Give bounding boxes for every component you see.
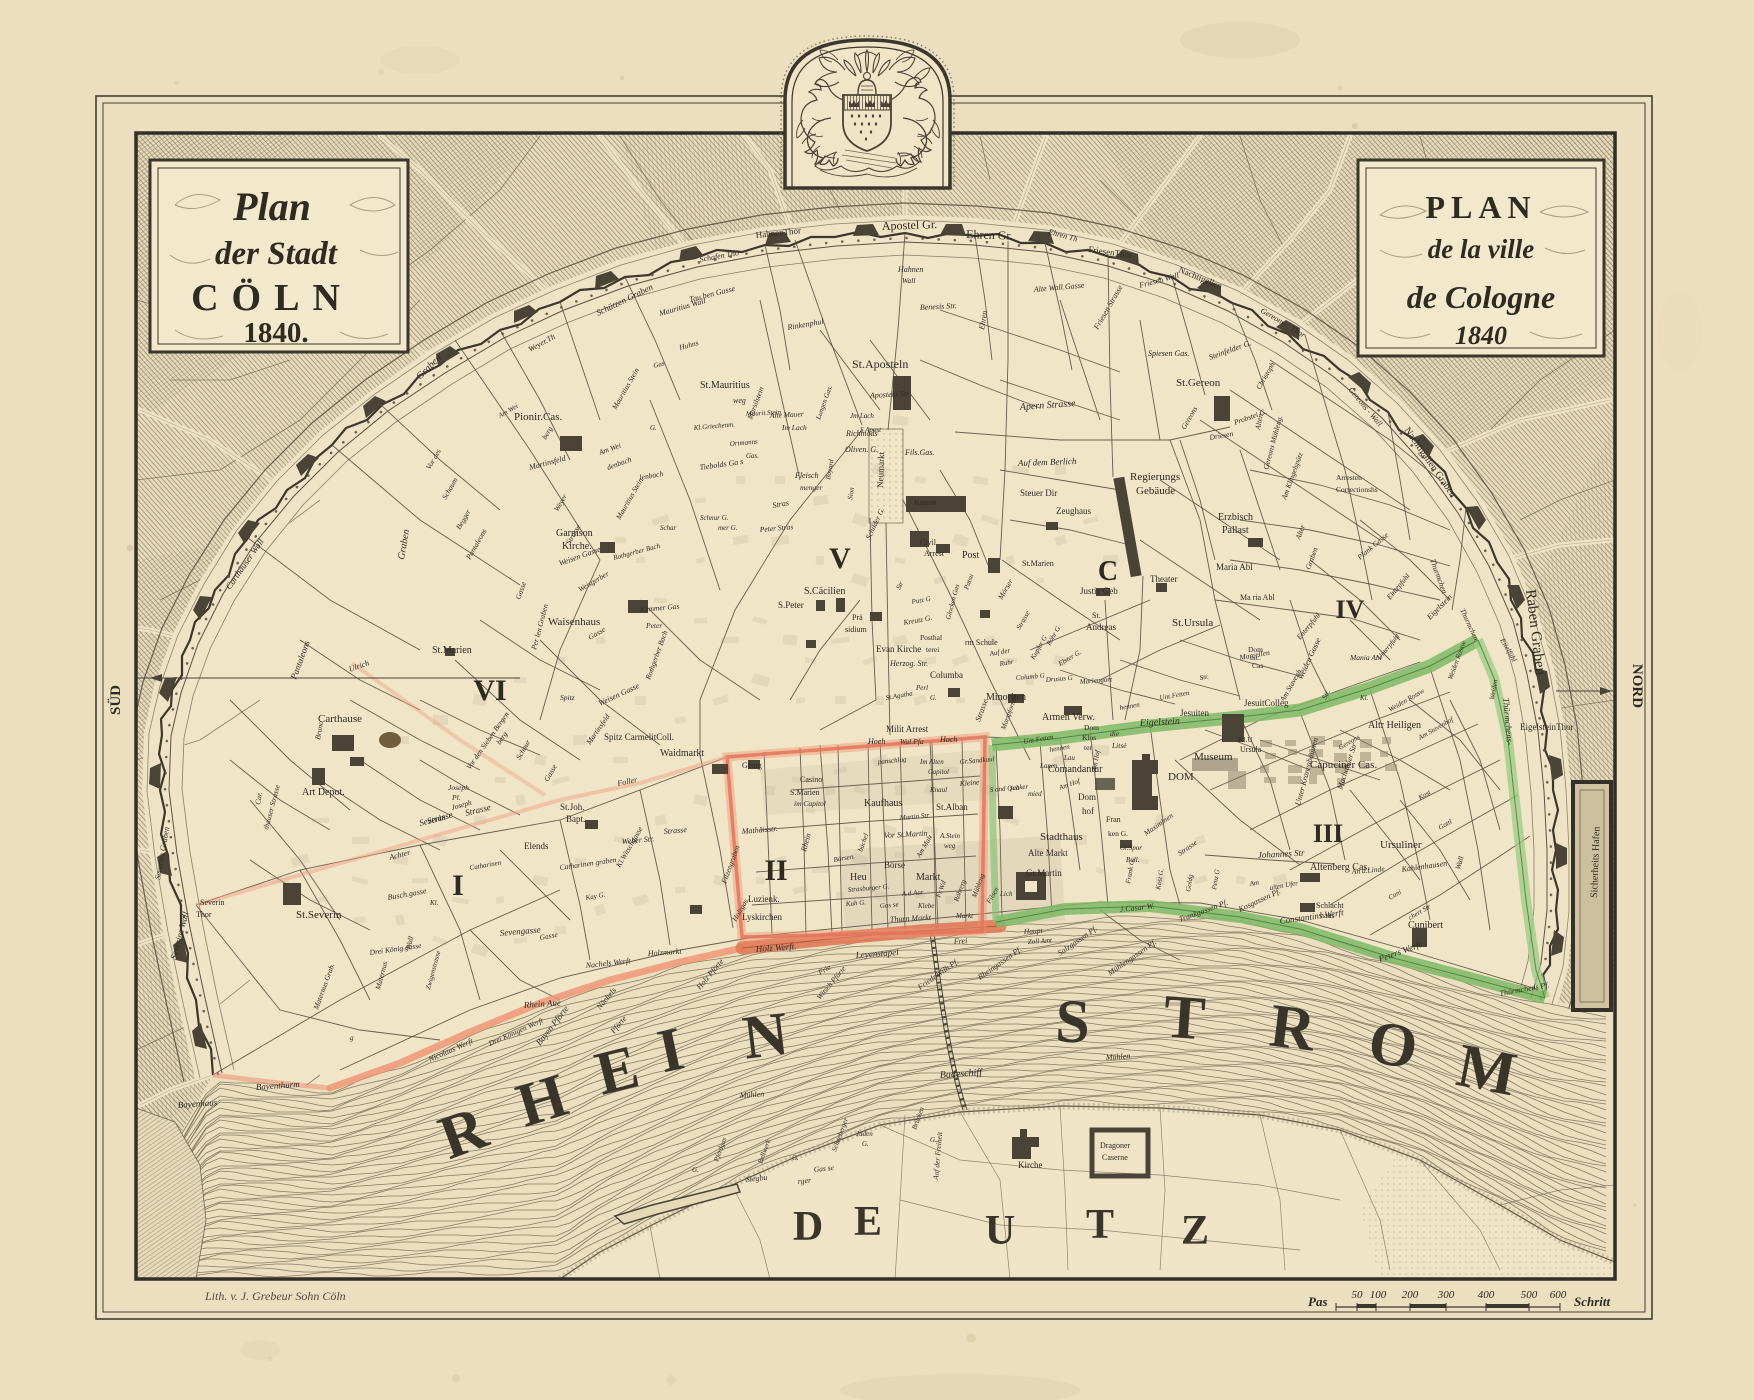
- svg-text:rger: rger: [797, 1176, 812, 1186]
- svg-text:Benesis Str.: Benesis Str.: [920, 301, 957, 312]
- svg-text:de la ville: de la ville: [1428, 234, 1534, 264]
- svg-text:Markt: Markt: [916, 872, 941, 883]
- svg-text:im Capitol: im Capitol: [794, 799, 826, 808]
- svg-text:II: II: [764, 854, 787, 887]
- svg-text:menger: menger: [800, 483, 823, 492]
- svg-text:Knaul: Knaul: [929, 786, 947, 794]
- svg-text:III: III: [1313, 819, 1343, 848]
- svg-text:Zeughaus: Zeughaus: [1056, 506, 1091, 516]
- svg-text:Stadthaus: Stadthaus: [1040, 831, 1083, 843]
- svg-text:U: U: [985, 1208, 1015, 1254]
- svg-text:DOM: DOM: [1168, 771, 1194, 783]
- svg-text:S.Peter: S.Peter: [778, 600, 804, 610]
- svg-text:Alte Markt: Alte Markt: [1028, 848, 1068, 858]
- svg-text:Luzienk.: Luzienk.: [748, 894, 780, 904]
- svg-text:A.Stein: A.Stein: [939, 832, 961, 840]
- svg-text:Wal.Pfa: Wal.Pfa: [900, 737, 924, 746]
- svg-text:Art Depot.: Art Depot.: [302, 787, 345, 798]
- svg-text:S.Cäcilien: S.Cäcilien: [804, 586, 845, 597]
- svg-text:Plan: Plan: [232, 184, 311, 229]
- svg-text:Andreas: Andreas: [1086, 622, 1116, 632]
- svg-text:Hoch: Hoch: [939, 735, 957, 744]
- svg-text:Herzog. Str.: Herzog. Str.: [889, 659, 928, 668]
- svg-text:Georg: Georg: [742, 761, 762, 770]
- svg-text:C: C: [1098, 556, 1118, 587]
- svg-text:G.: G.: [930, 1136, 937, 1144]
- svg-text:Kl.: Kl.: [1359, 694, 1369, 702]
- svg-text:Kleine: Kleine: [958, 777, 980, 788]
- svg-text:Waidmarkt: Waidmarkt: [660, 748, 704, 759]
- svg-text:G.: G.: [792, 1154, 799, 1162]
- svg-text:St.Ursula: St.Ursula: [1172, 617, 1213, 629]
- svg-text:Justiz Geb: Justiz Geb: [1080, 586, 1118, 596]
- svg-text:Regierungs: Regierungs: [1130, 471, 1180, 483]
- svg-text:Klebe: Klebe: [917, 902, 934, 910]
- svg-text:Arresten: Arresten: [1336, 473, 1362, 482]
- svg-text:Jesuiten: Jesuiten: [1180, 708, 1209, 718]
- svg-text:Spitz CarmelitColl.: Spitz CarmelitColl.: [604, 732, 674, 742]
- svg-text:mied: mied: [1028, 790, 1042, 798]
- svg-text:Pallast: Pallast: [1222, 525, 1249, 536]
- svg-text:Mühlen: Mühlen: [1105, 1051, 1131, 1062]
- svg-text:1840.: 1840.: [243, 317, 308, 349]
- svg-text:Juden: Juden: [856, 1130, 873, 1138]
- svg-text:St.Aposteln: St.Aposteln: [852, 357, 908, 371]
- svg-text:Ma ria Abl: Ma ria Abl: [1240, 593, 1275, 602]
- svg-text:VI: VI: [473, 674, 506, 707]
- svg-text:Perl: Perl: [915, 684, 928, 692]
- svg-text:Arrest: Arrest: [924, 549, 945, 558]
- svg-text:Dom: Dom: [1078, 792, 1096, 802]
- svg-text:St.Mauritius: St.Mauritius: [700, 380, 750, 391]
- svg-text:Lith. v. J. Grebeur Sohn Cöln: Lith. v. J. Grebeur Sohn Cöln: [204, 1289, 346, 1303]
- svg-text:NORD: NORD: [1629, 664, 1645, 708]
- svg-text:Bapt.: Bapt.: [566, 814, 585, 824]
- svg-text:Fran: Fran: [1106, 815, 1121, 824]
- svg-text:Theater: Theater: [1150, 574, 1177, 584]
- svg-text:Pionir.Cas.: Pionir.Cas.: [514, 411, 563, 423]
- svg-text:Waisenhaus: Waisenhaus: [548, 616, 600, 628]
- svg-text:Lau: Lau: [1063, 754, 1075, 762]
- svg-text:SÜD: SÜD: [107, 685, 124, 715]
- svg-text:V: V: [829, 542, 851, 575]
- svg-text:Dom: Dom: [1084, 723, 1099, 732]
- svg-text:Kl.: Kl.: [429, 899, 439, 907]
- svg-text:300: 300: [1437, 1289, 1455, 1301]
- svg-text:Lanen: Lanen: [1039, 762, 1058, 770]
- svg-text:EigelsteinThor: EigelsteinThor: [1520, 722, 1574, 732]
- svg-text:I: I: [452, 869, 464, 902]
- svg-text:Mühlen: Mühlen: [739, 1089, 765, 1100]
- svg-text:Frei: Frei: [953, 936, 968, 946]
- svg-text:50: 50: [1352, 1289, 1364, 1301]
- svg-text:weg: weg: [733, 396, 746, 405]
- svg-text:Kaufhaus: Kaufhaus: [864, 798, 902, 809]
- svg-text:600: 600: [1550, 1289, 1567, 1301]
- svg-text:Armen Verw.: Armen Verw.: [1042, 712, 1095, 723]
- svg-text:Evan Kirche: Evan Kirche: [876, 644, 921, 654]
- svg-text:1840: 1840: [1455, 321, 1507, 350]
- svg-text:Joseph: Joseph: [448, 783, 469, 792]
- svg-text:Börse: Börse: [884, 860, 905, 870]
- svg-text:Spitz: Spitz: [560, 693, 575, 702]
- svg-text:St.: St.: [1092, 611, 1101, 620]
- svg-text:Fleisch: Fleisch: [794, 471, 819, 480]
- svg-text:Peter: Peter: [645, 621, 662, 630]
- svg-text:E: E: [854, 1199, 882, 1245]
- svg-text:Fils.Gas.: Fils.Gas.: [904, 448, 934, 457]
- svg-text:Gr.Martin: Gr.Martin: [1026, 868, 1062, 878]
- svg-text:Severin: Severin: [200, 898, 224, 907]
- svg-text:100: 100: [1370, 1289, 1387, 1301]
- svg-text:Gr.Spor: Gr.Spor: [1120, 844, 1142, 852]
- svg-text:sidium: sidium: [845, 625, 868, 634]
- svg-text:S: S: [1054, 987, 1091, 1056]
- svg-text:g: g: [350, 1034, 354, 1042]
- svg-text:Caserne: Caserne: [1102, 1153, 1128, 1162]
- svg-text:Im Alten: Im Alten: [919, 758, 944, 766]
- svg-text:Schar: Schar: [660, 524, 677, 532]
- svg-text:Lich: Lich: [999, 890, 1013, 898]
- svg-text:Posthal: Posthal: [920, 633, 942, 642]
- svg-text:St.Marien: St.Marien: [1022, 559, 1054, 568]
- svg-text:Dragoner: Dragoner: [1100, 1141, 1131, 1150]
- svg-text:Pas: Pas: [1308, 1294, 1328, 1309]
- svg-text:Wall: Wall: [902, 276, 915, 285]
- svg-text:Hoch: Hoch: [867, 737, 885, 746]
- svg-text:Str.: Str.: [1199, 672, 1210, 682]
- svg-text:Cunibert: Cunibert: [1408, 920, 1443, 931]
- svg-text:St.Marien: St.Marien: [432, 645, 472, 656]
- svg-text:Kirche: Kirche: [1018, 1160, 1043, 1170]
- svg-text:Spiesen Gas.: Spiesen Gas.: [1148, 349, 1189, 358]
- svg-text:Casino: Casino: [800, 775, 822, 784]
- svg-text:Gas.: Gas.: [746, 452, 759, 460]
- svg-text:T: T: [1086, 1202, 1114, 1248]
- svg-text:Museum: Museum: [1194, 751, 1233, 763]
- svg-text:Ursuliner: Ursuliner: [1380, 839, 1422, 851]
- svg-text:Oliven. G.: Oliven. G.: [845, 445, 878, 454]
- svg-text:hof: hof: [1082, 806, 1094, 816]
- svg-text:Ehren Gr.: Ehren Gr.: [966, 227, 1013, 243]
- svg-text:Klos: Klos: [1082, 733, 1096, 742]
- svg-text:500: 500: [1521, 1289, 1538, 1301]
- svg-text:Post: Post: [962, 550, 979, 561]
- svg-text:Minoriten: Minoriten: [986, 692, 1026, 703]
- svg-text:de Cologne: de Cologne: [1407, 279, 1555, 315]
- svg-text:die: die: [1110, 729, 1120, 738]
- svg-text:Pl.: Pl.: [451, 793, 461, 802]
- svg-text:ter: ter: [1084, 743, 1092, 752]
- svg-text:G.: G.: [930, 694, 937, 702]
- svg-text:mer G.: mer G.: [718, 524, 738, 532]
- svg-text:200: 200: [1402, 1289, 1419, 1301]
- svg-text:S.Marien: S.Marien: [790, 788, 820, 797]
- svg-text:Thor: Thor: [196, 910, 212, 919]
- svg-text:Hahnen: Hahnen: [897, 265, 923, 274]
- svg-text:Neumarkt: Neumarkt: [875, 451, 886, 488]
- svg-text:Schnur G.: Schnur G.: [700, 514, 729, 522]
- svg-text:St.Joh.: St.Joh.: [560, 802, 585, 812]
- svg-text:Gas se: Gas se: [879, 900, 899, 910]
- svg-text:St.Severin: St.Severin: [296, 909, 342, 921]
- svg-text:Kasern: Kasern: [914, 498, 937, 507]
- svg-text:CÖLN: CÖLN: [191, 277, 353, 319]
- svg-text:Correctionshs: Correctionshs: [1336, 485, 1378, 494]
- svg-text:Kl.U: Kl.U: [1238, 735, 1253, 744]
- svg-text:terei: terei: [926, 645, 939, 654]
- svg-text:Prä: Prä: [852, 613, 863, 622]
- svg-text:Schritt: Schritt: [1574, 1294, 1611, 1309]
- svg-text:der Stadt: der Stadt: [215, 236, 338, 272]
- svg-text:Columba: Columba: [930, 670, 963, 680]
- svg-text:rm Schule: rm Schule: [965, 638, 998, 647]
- svg-text:Milit Arrest: Milit Arrest: [886, 724, 929, 734]
- svg-text:Capitol: Capitol: [928, 768, 949, 776]
- svg-text:Elends: Elends: [524, 841, 549, 851]
- svg-text:Ursula: Ursula: [1240, 745, 1262, 754]
- svg-text:Cas: Cas: [1252, 661, 1263, 670]
- svg-text:Im Lach: Im Lach: [781, 423, 807, 432]
- svg-text:Jm Lach: Jm Lach: [850, 412, 874, 420]
- svg-text:Civil: Civil: [920, 538, 937, 547]
- svg-text:G.: G.: [650, 424, 657, 432]
- svg-text:Lyskirchen: Lyskirchen: [742, 912, 782, 922]
- svg-text:Heu: Heu: [850, 872, 867, 883]
- svg-text:Z: Z: [1181, 1208, 1209, 1254]
- svg-text:ken G.: ken G.: [1108, 829, 1128, 838]
- svg-text:Maria Abl: Maria Abl: [1216, 562, 1253, 572]
- svg-text:PLAN: PLAN: [1425, 189, 1536, 225]
- svg-text:St.Gereon: St.Gereon: [1176, 377, 1221, 389]
- svg-text:N: N: [739, 1000, 792, 1073]
- svg-text:S Apost: S Apost: [860, 426, 882, 434]
- svg-text:Eigelstein: Eigelstein: [1139, 716, 1181, 729]
- svg-text:Haupt: Haupt: [1023, 926, 1044, 936]
- svg-text:Erzbisch: Erzbisch: [1218, 512, 1253, 523]
- svg-text:St.Alban: St.Alban: [936, 802, 968, 812]
- svg-text:Litsè: Litsè: [1111, 741, 1127, 750]
- svg-text:D: D: [793, 1204, 823, 1250]
- svg-text:Gebäude: Gebäude: [1136, 485, 1175, 497]
- svg-text:Apostel Gr.: Apostel Gr.: [882, 217, 938, 233]
- svg-text:Altr Heiligen: Altr Heiligen: [1368, 720, 1421, 731]
- svg-text:G.: G.: [862, 1140, 869, 1148]
- svg-text:Steuer Dir: Steuer Dir: [1020, 488, 1057, 498]
- svg-text:T: T: [1161, 983, 1207, 1054]
- svg-text:Markt: Markt: [955, 912, 974, 920]
- svg-text:G.: G.: [692, 1166, 699, 1174]
- svg-text:400: 400: [1478, 1289, 1495, 1301]
- svg-text:Auf dem Berlich: Auf dem Berlich: [1017, 456, 1077, 468]
- svg-text:weg: weg: [944, 842, 956, 850]
- svg-text:IV: IV: [1336, 595, 1365, 624]
